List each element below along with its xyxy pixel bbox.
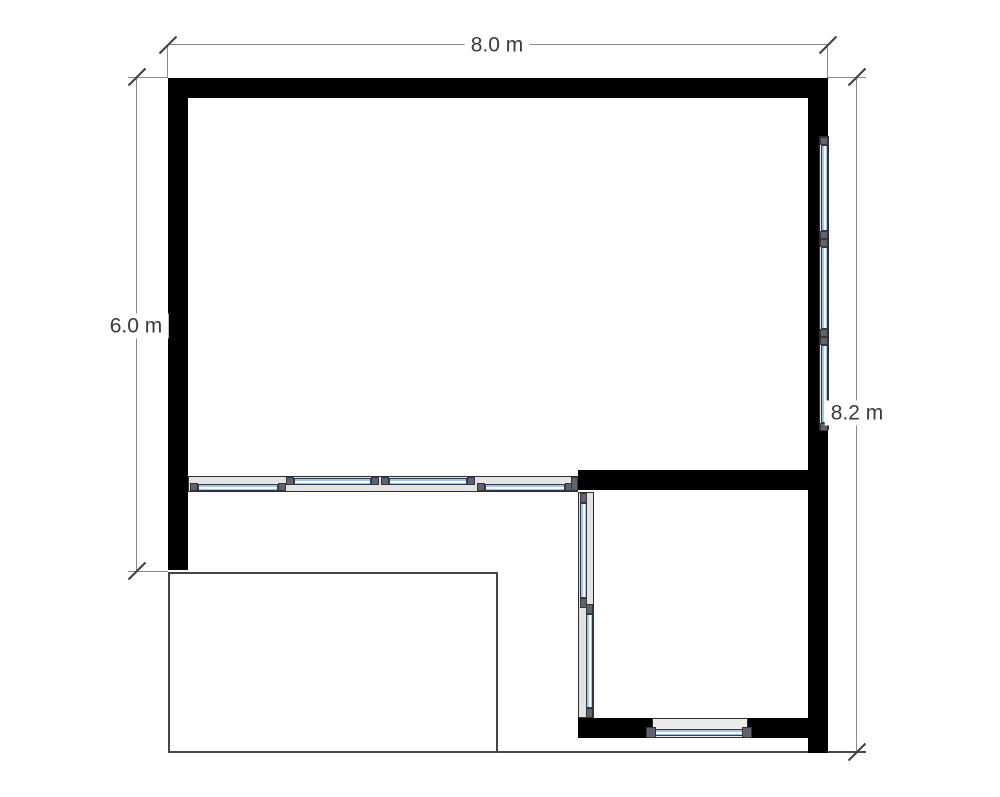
window-mullion-cap (371, 477, 379, 485)
dimension-extension-right-top (828, 77, 866, 78)
window-glazing (821, 145, 828, 231)
window-mullion-cap (190, 483, 198, 491)
window-glazing (586, 614, 593, 708)
window-wall-vertical[interactable] (578, 492, 594, 718)
dimension-label-left: 6.0 m (104, 313, 169, 338)
window-mullion-cap (586, 708, 593, 718)
window-wall-right[interactable] (819, 136, 829, 430)
window-mullion-cap (820, 239, 828, 247)
window-mullion-cap (820, 329, 828, 337)
window-mullion-cap (586, 604, 593, 614)
window-mullion-cap (381, 477, 389, 485)
wall-bottom-room-right-segment[interactable] (748, 718, 808, 738)
window-mullion-cap (580, 493, 587, 503)
window-glazing (294, 478, 371, 485)
window-mullion-cap (278, 483, 286, 491)
window-mullion-cap (286, 477, 294, 485)
window-glazing (580, 503, 587, 598)
wall-bottom-room-left-segment[interactable] (578, 718, 652, 738)
wall-left[interactable] (168, 78, 188, 570)
window-mullion-cap (820, 231, 828, 239)
window-mullion-cap (646, 727, 656, 738)
dimension-label-right: 8.2 m (825, 400, 890, 425)
floor-plan-canvas: 8.0 m 6.0 m 8.2 m (0, 0, 1000, 797)
window-end-cap (571, 477, 578, 491)
dimension-tick (159, 36, 177, 54)
wall-top[interactable] (168, 78, 828, 98)
window-glazing (485, 484, 565, 491)
window-mullion-cap (467, 477, 475, 485)
window-glazing (389, 478, 467, 485)
window-mullion-cap (820, 337, 828, 345)
window-mullion-cap (742, 727, 752, 738)
window-mullion-cap (477, 483, 485, 491)
dimension-extension-top-left (167, 45, 168, 78)
deck-outline[interactable] (168, 572, 498, 753)
window-bottom-room[interactable] (652, 718, 748, 738)
window-glazing (821, 247, 828, 329)
window-glazing (198, 484, 278, 491)
window-mullion-cap (820, 137, 828, 145)
dimension-extension-top-right (827, 45, 828, 78)
dimension-label-top: 8.0 m (465, 32, 530, 57)
dimension-tick (819, 36, 837, 54)
wall-interior-horizontal[interactable] (578, 470, 808, 490)
window-wall-horizontal[interactable] (188, 476, 578, 492)
window-glazing (655, 729, 745, 736)
